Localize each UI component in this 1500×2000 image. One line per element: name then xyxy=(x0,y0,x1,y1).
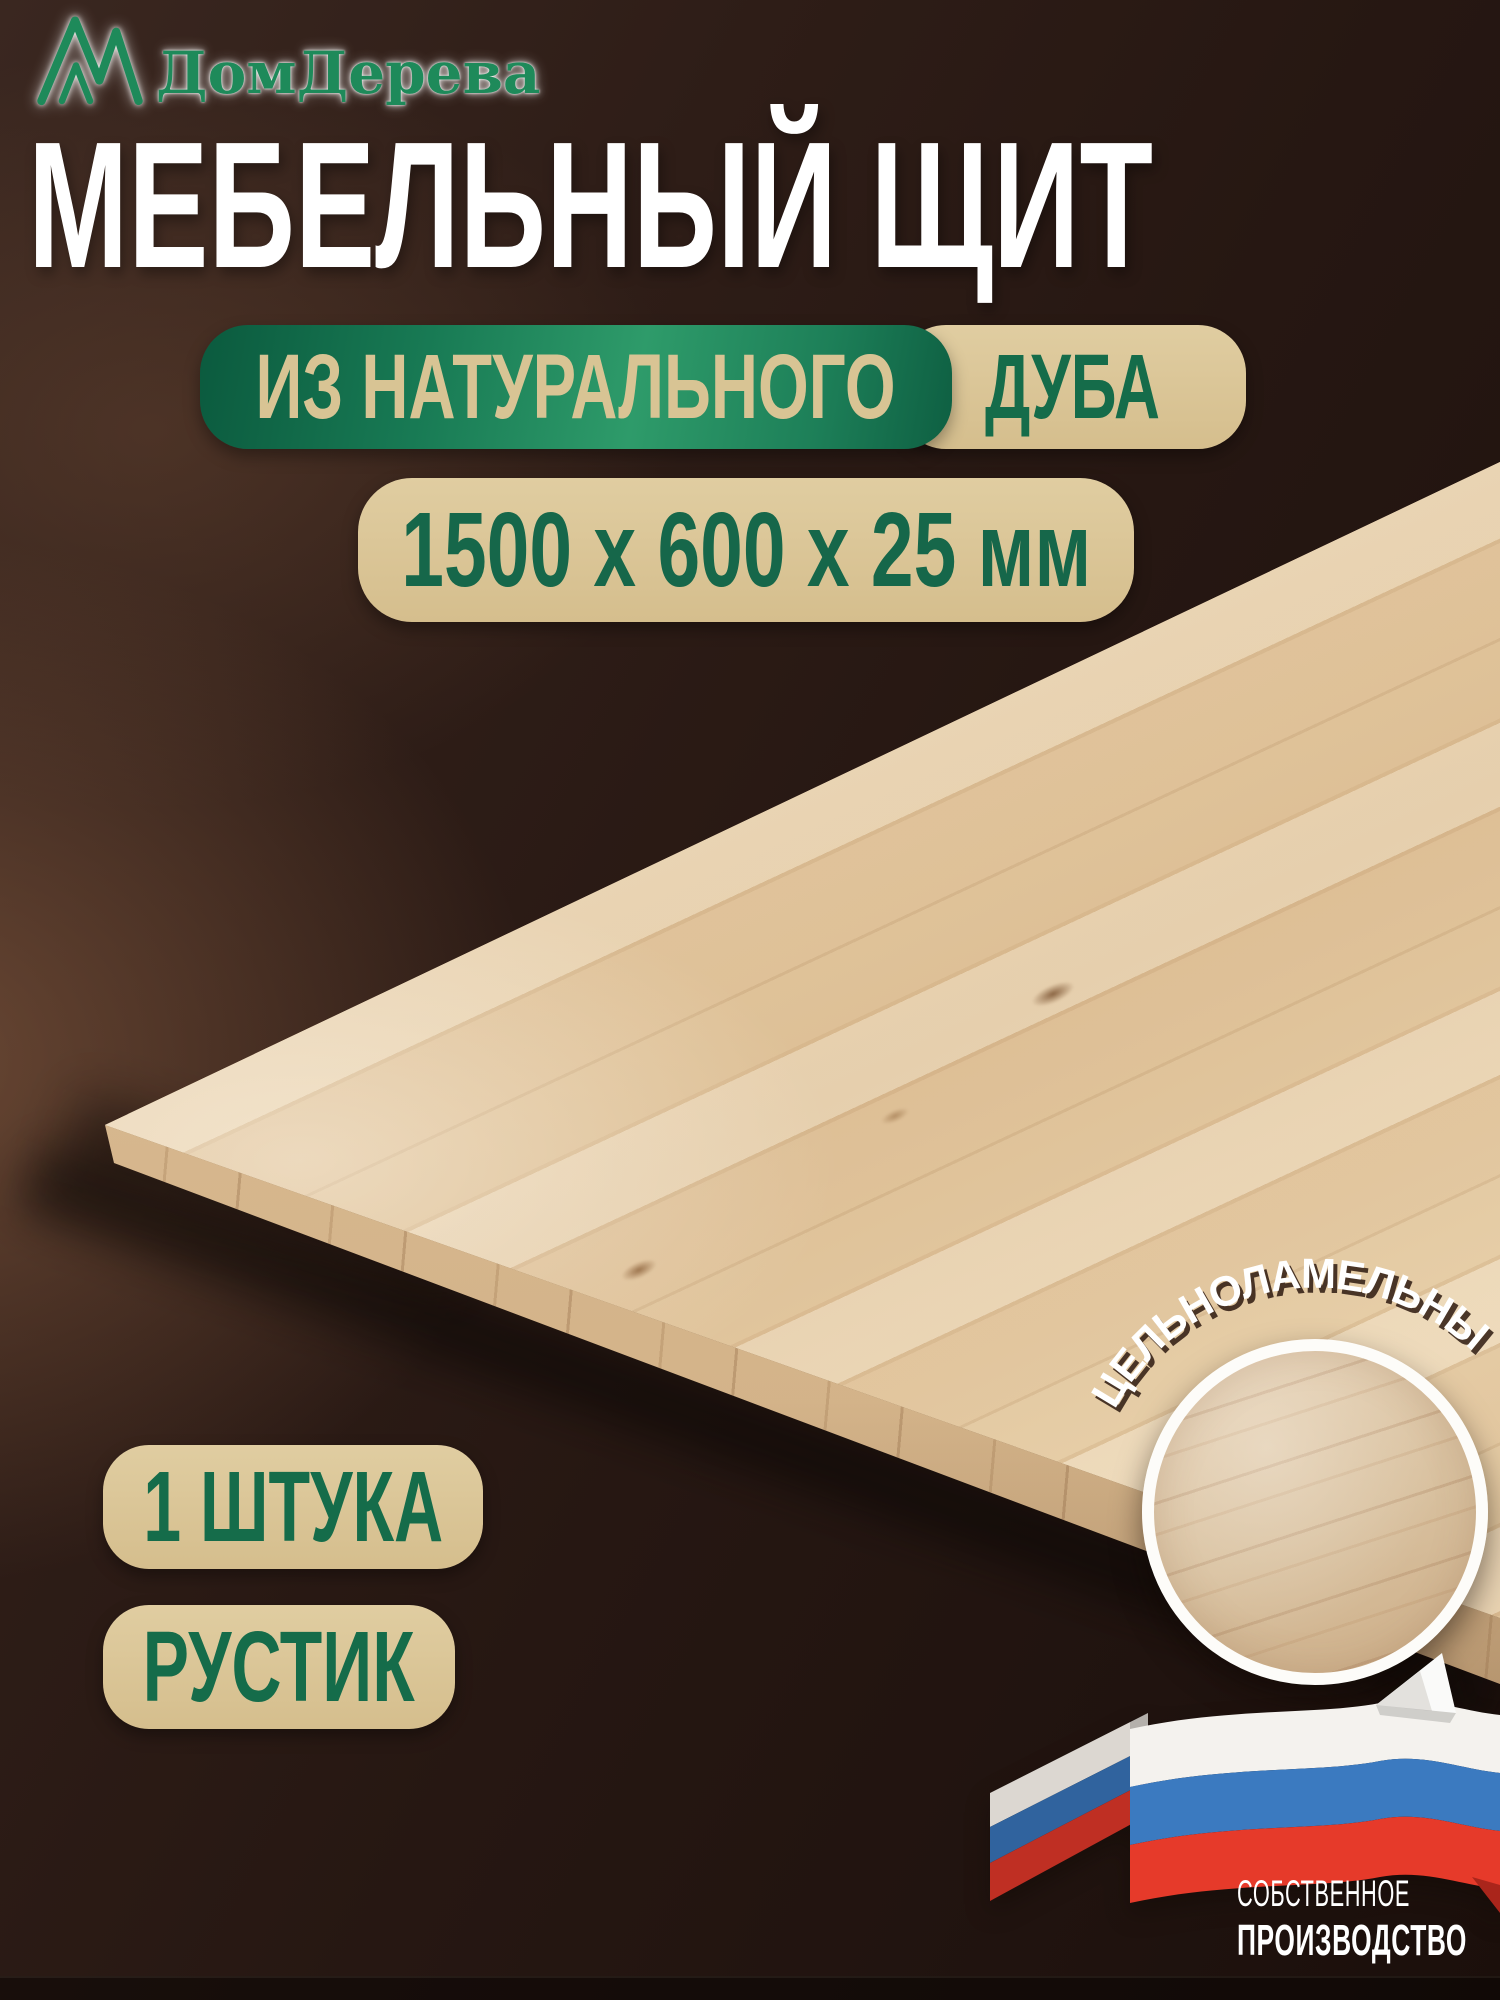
footer-line2: ПРОИЗВОДСТВО xyxy=(1237,1916,1467,1966)
manufacturer-note: СОБСТВЕННОЕ ПРОИЗВОДСТВО xyxy=(1237,1872,1500,1966)
product-promo-image: ДомДерева МЕБЕЛЬНЫЙ ЩИТ ДУБА ИЗ НАТУРАЛЬ… xyxy=(0,0,1500,2000)
quantity-pill: 1 ШТУКА xyxy=(103,1445,483,1569)
footer-line1: СОБСТВЕННОЕ xyxy=(1237,1872,1410,1916)
material-prefix-label: ИЗ НАТУРАЛЬНОГО xyxy=(256,335,896,440)
dimensions-label: 1500 х 600 х 25 мм xyxy=(401,490,1091,611)
brand-name: ДомДерева xyxy=(156,44,540,106)
grade-label: РУСТИК xyxy=(143,1610,415,1725)
material-pill-label: ДУБА xyxy=(985,335,1160,440)
mountain-peaks-icon xyxy=(34,10,146,106)
quantity-label: 1 ШТУКА xyxy=(143,1450,443,1565)
brand-logo: ДомДерева xyxy=(34,10,540,106)
page-title: МЕБЕЛЬНЫЙ ЩИТ xyxy=(28,116,1500,296)
grade-pill: РУСТИК xyxy=(103,1605,455,1729)
dimensions-pill: 1500 х 600 х 25 мм xyxy=(358,478,1134,622)
russian-flag-ribbon-icon xyxy=(980,1615,1500,1915)
material-prefix-pill: ИЗ НАТУРАЛЬНОГО xyxy=(200,325,952,449)
